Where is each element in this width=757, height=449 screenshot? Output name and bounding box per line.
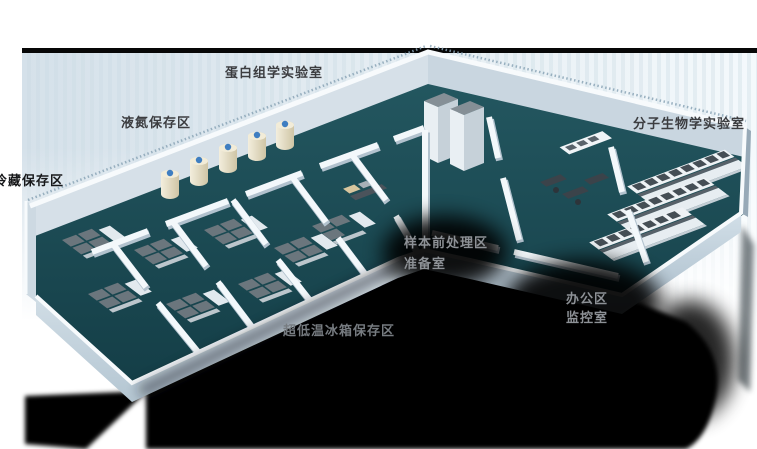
nitrogen-tank — [161, 170, 179, 199]
apex-cabinets — [424, 93, 484, 171]
label-preparation-room: 准备室 — [404, 253, 446, 272]
tall-cabinet — [450, 101, 484, 171]
label-liquid-nitrogen-area: 液氮保存区 — [121, 112, 191, 131]
lab-3d-floorplan: 蛋白组学实验室 液氮保存区 冷藏保存区 分子生物学实验室 样本前处理区 准备室 … — [0, 0, 757, 449]
label-cold-storage-area: 冷藏保存区 — [0, 170, 64, 189]
nitrogen-tank — [219, 144, 237, 173]
chair — [553, 187, 559, 193]
right-shadow-blob — [645, 300, 735, 420]
label-proteomics-lab: 蛋白组学实验室 — [225, 62, 323, 81]
label-sample-pretreatment: 样本前处理区 — [404, 232, 488, 251]
top-accent-bar — [22, 48, 757, 53]
label-monitoring-room: 监控室 — [566, 307, 608, 326]
chair — [575, 199, 581, 205]
floorplan-render — [0, 0, 757, 449]
label-ult-freezer-area: 超低温冰箱保存区 — [283, 320, 395, 339]
nitrogen-tank — [190, 157, 208, 186]
label-molecular-biology-lab: 分子生物学实验室 — [633, 113, 745, 132]
label-office-area: 办公区 — [566, 288, 608, 307]
notch-shadow-blob — [383, 216, 507, 288]
shadow-left-wedge — [25, 391, 147, 449]
nitrogen-tank — [276, 121, 294, 150]
nitrogen-tank — [248, 132, 266, 161]
